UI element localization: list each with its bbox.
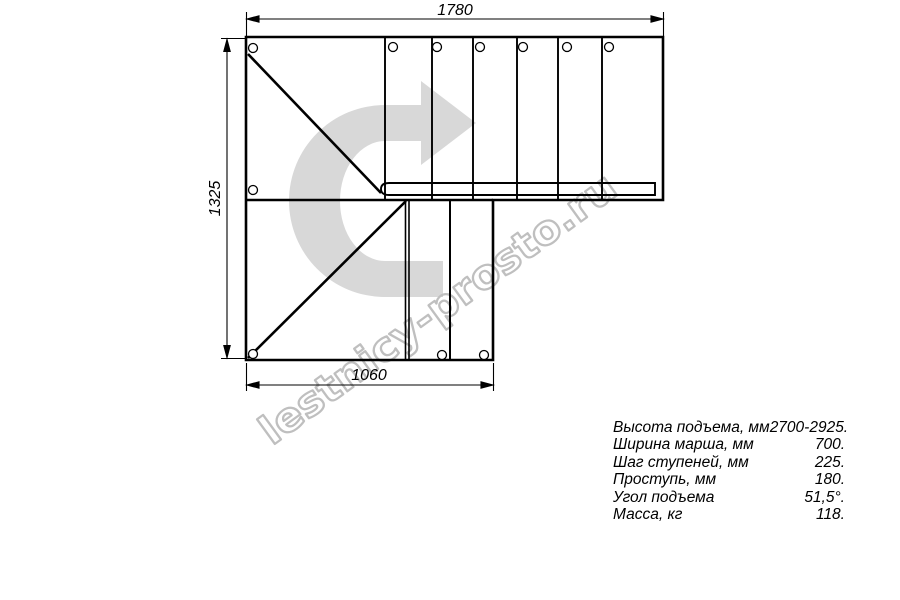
hole-icon [249,350,258,359]
dimension-top-value: 1780 [437,2,473,19]
dim-arrow-icon [247,382,259,388]
spec-row: Проступь, мм 180. [613,471,845,488]
spec-row: Высота подъема, мм 2700-2925. [613,419,845,436]
dim-arrow-icon [651,16,663,22]
spec-value: 700. [815,436,845,453]
hole-icon [389,43,398,52]
spec-value: 180. [815,471,845,488]
hole-icon [519,43,528,52]
direction-arrow-icon [289,81,476,297]
hole-icon [249,186,258,195]
hole-icon [605,43,614,52]
hole-icon [480,351,489,360]
spec-row: Угол подъема 51,5°. [613,489,845,506]
spec-row: Ширина марша, мм 700. [613,436,845,453]
spec-label: Проступь, мм [613,471,716,488]
spec-table: Высота подъема, мм 2700-2925. Ширина мар… [613,419,845,523]
spec-label: Высота подъема, мм [613,419,770,436]
hole-icon [433,43,442,52]
hole-icon [249,44,258,53]
spec-value: 225. [815,454,845,471]
dim-arrow-icon [224,40,230,52]
dim-arrow-icon [224,346,230,358]
page: lestnicy-prosto.ru [0,0,900,600]
hole-icon [438,351,447,360]
spec-value: 51,5°. [804,489,845,506]
dim-arrow-icon [247,16,259,22]
dimension-left-value: 1325 [207,181,224,217]
spec-row: Шаг ступеней, мм 225. [613,454,845,471]
hole-icon [563,43,572,52]
spec-value: 118. [816,506,845,523]
dim-arrow-icon [481,382,493,388]
spec-label: Ширина марша, мм [613,436,754,453]
spec-value: 2700-2925. [770,419,848,436]
spec-row: Масса, кг 118. [613,506,845,523]
spec-label: Масса, кг [613,506,682,523]
spec-label: Угол подъема [613,489,714,506]
dimension-left [221,39,245,359]
spec-label: Шаг ступеней, мм [613,454,749,471]
hole-icon [476,43,485,52]
dimension-bottom-value: 1060 [351,367,387,384]
